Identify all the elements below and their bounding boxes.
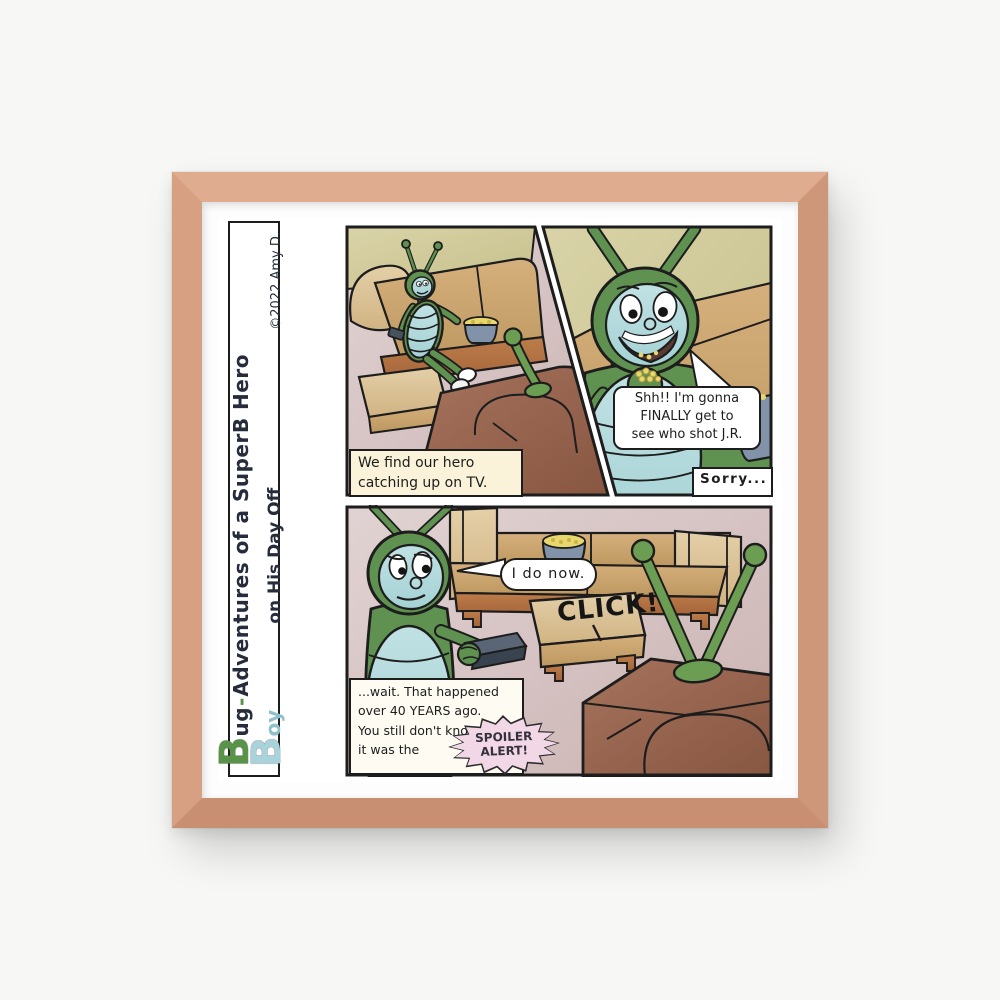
title-boy-initial: B (253, 737, 282, 768)
antenna-ball (434, 242, 442, 250)
spoiler-alert-burst: SPOILER ALERT! (447, 713, 561, 777)
picture-frame: Bug-Adventures of a SuperB Hero Boyon Hi… (172, 172, 828, 828)
title-hyphen: - (229, 697, 253, 707)
title-strip: Bug-Adventures of a SuperB Hero Boyon Hi… (228, 221, 280, 777)
panel1-caption-line1: We find our hero (358, 453, 514, 473)
comic-page: Bug-Adventures of a SuperB Hero Boyon Hi… (218, 218, 782, 782)
comic-panels: We find our hero catching up on TV. Shh!… (345, 225, 773, 777)
mat-border: Bug-Adventures of a SuperB Hero Boyon Hi… (202, 202, 798, 798)
panel2-speech-line1: Shh!! I'm gonna (615, 390, 759, 408)
popcorn-bowl (464, 317, 498, 343)
product-photo: Bug-Adventures of a SuperB Hero Boyon Hi… (0, 0, 1000, 1000)
panel2-speech-line3: see who shot J.R. (615, 426, 759, 444)
bug-hand-3 (458, 643, 480, 665)
antenna-ball-left (632, 540, 654, 562)
panel2-speech-line2: FINALLY get to (615, 408, 759, 426)
title-series: Adventures of a SuperB Hero (229, 354, 253, 697)
title-line-2: Boyon His Day Off©2022 Amy D. (253, 222, 285, 767)
panel3-speech-bubble: I do now. (500, 558, 597, 591)
antenna-ball-right (744, 544, 766, 566)
panel1-caption-line2: catching up on TV. (358, 473, 514, 493)
title-rotated-text: Bug-Adventures of a SuperB Hero Boyon Hi… (231, 218, 275, 771)
spoiler-alert-text: SPOILER ALERT! (447, 713, 561, 777)
title-bug-rest: ug (229, 707, 253, 737)
title-subtitle: on His Day Off (265, 488, 285, 624)
panel3-caption-line1: ...wait. That happened (358, 682, 515, 701)
bug-nose-3 (411, 578, 422, 589)
antenna-ball (402, 240, 410, 248)
panel2-speech-bubble: Shh!! I'm gonna FINALLY get to see who s… (613, 386, 761, 450)
bug-nose (645, 319, 656, 330)
title-boy-rest: oy (261, 710, 285, 737)
panel2-caption-sorry: Sorry... (692, 467, 773, 497)
title-line-1: Bug-Adventures of a SuperB Hero (221, 222, 253, 767)
spoiler-line2: ALERT! (480, 744, 528, 759)
title-credit: ©2022 Amy D. (269, 232, 284, 330)
panel1-caption: We find our hero catching up on TV. (349, 449, 523, 497)
